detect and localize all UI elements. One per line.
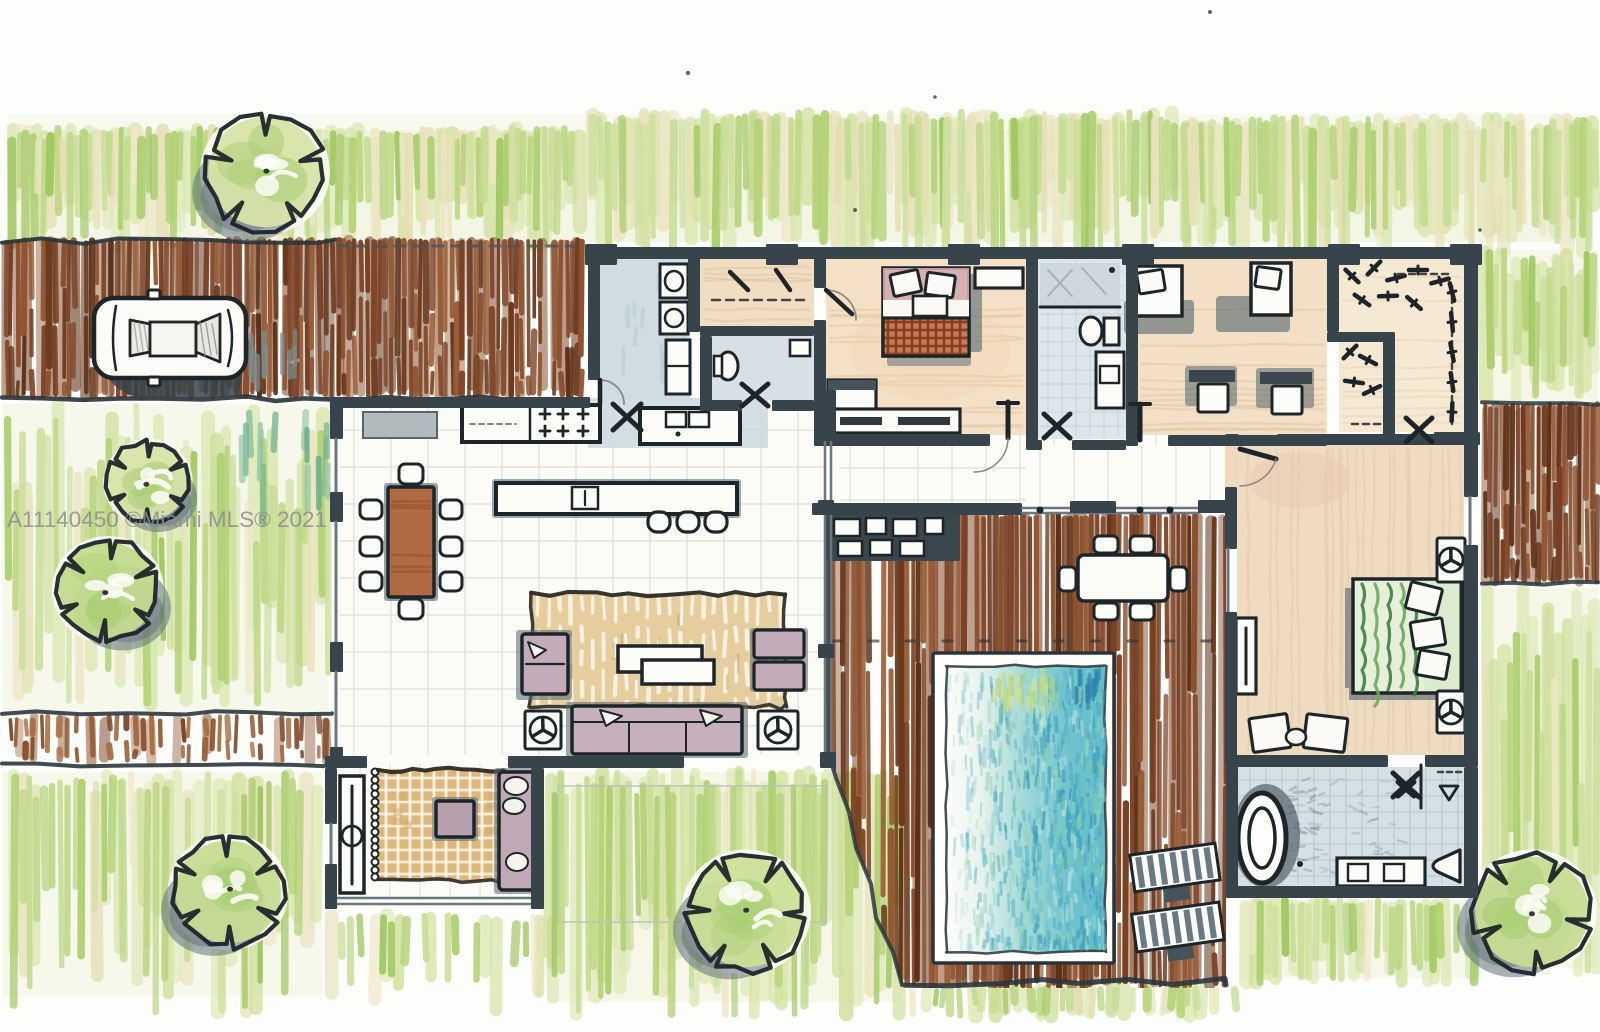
svg-text:A11140450 ©Miami MLS® 2021: A11140450 ©Miami MLS® 2021 bbox=[7, 507, 327, 532]
